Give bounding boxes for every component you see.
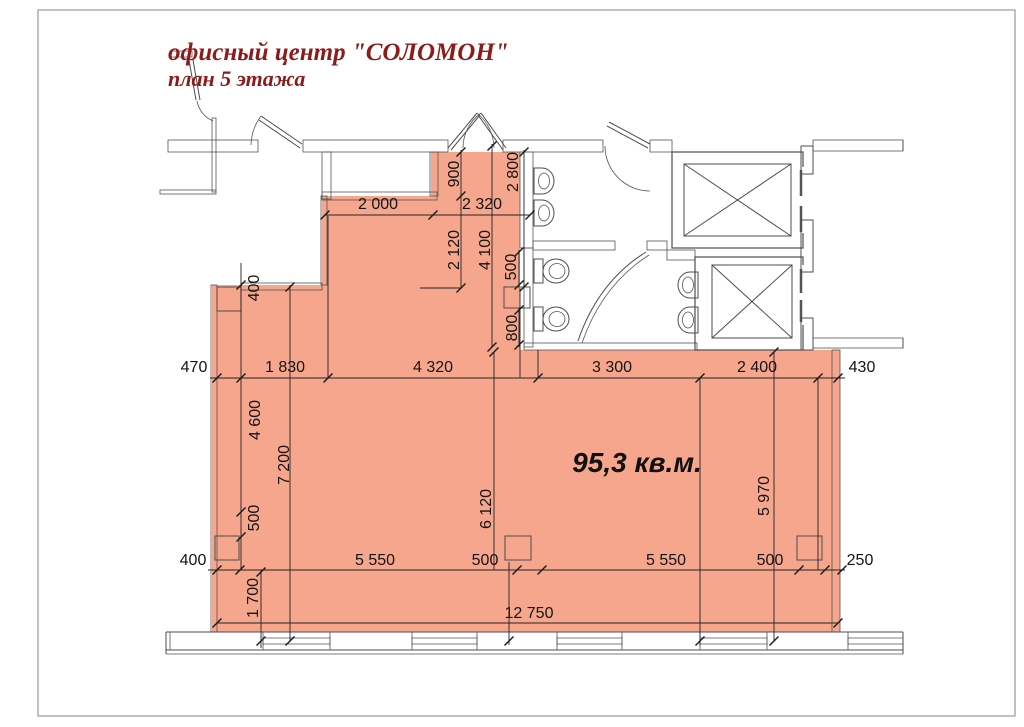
double-door-swing [448, 113, 506, 150]
dim-5970: 5 970 [756, 476, 773, 516]
dim-4600: 4 600 [247, 400, 264, 440]
toilet-icon [534, 259, 569, 283]
urinal-icon [534, 168, 554, 194]
dim-2800: 2 800 [505, 152, 522, 192]
dim-5550-a: 5 550 [355, 552, 395, 569]
door-swing [605, 122, 650, 191]
page-subtitle: план 5 этажа [168, 66, 305, 91]
dim-500-left: 500 [246, 505, 263, 532]
dim-500-b: 500 [757, 552, 784, 569]
toilet-icon [534, 307, 569, 331]
dim-900: 900 [446, 161, 463, 188]
dim-6120: 6 120 [478, 489, 495, 529]
dim-4320: 4 320 [413, 359, 453, 376]
dim-500-a: 500 [472, 552, 499, 569]
floor-plan-page: офисный центр "СОЛОМОН" план 5 этажа 95,… [0, 0, 1024, 727]
wc-fixtures [534, 168, 698, 333]
dim-800: 800 [504, 315, 521, 342]
dim-400-bottom: 400 [180, 552, 207, 569]
dim-470: 470 [181, 359, 208, 376]
elevator-shaft-1 [672, 152, 808, 248]
elevator-shaft-2 [695, 257, 808, 350]
dim-1830: 1 830 [265, 359, 305, 376]
page-title: офисный центр "СОЛОМОН" [168, 39, 509, 66]
dim-2000: 2 000 [358, 196, 398, 213]
room-area-label: 95,3 кв.м. [572, 447, 702, 478]
dim-4100: 4 100 [477, 230, 494, 270]
dim-1700: 1 700 [245, 578, 262, 618]
dim-2120: 2 120 [446, 230, 463, 270]
dim-250: 250 [847, 552, 874, 569]
dim-3300: 3 300 [592, 359, 632, 376]
window-glazing [263, 636, 903, 646]
dim-5550-b: 5 550 [646, 552, 686, 569]
dim-12750: 12 750 [505, 605, 554, 622]
window-band [166, 632, 903, 654]
dim-2320: 2 320 [462, 196, 502, 213]
dim-430: 430 [849, 359, 876, 376]
door-swing [251, 116, 302, 148]
dim-2400: 2 400 [737, 359, 777, 376]
floor-plan-svg: офисный центр "СОЛОМОН" план 5 этажа 95,… [0, 0, 1024, 727]
dim-7200: 7 200 [276, 445, 293, 485]
dim-400-left: 400 [246, 275, 263, 302]
door-swing [578, 252, 649, 343]
elevator-lobby-piers [801, 140, 903, 350]
urinal-icon [534, 200, 554, 226]
dim-500-upper: 500 [503, 254, 520, 281]
